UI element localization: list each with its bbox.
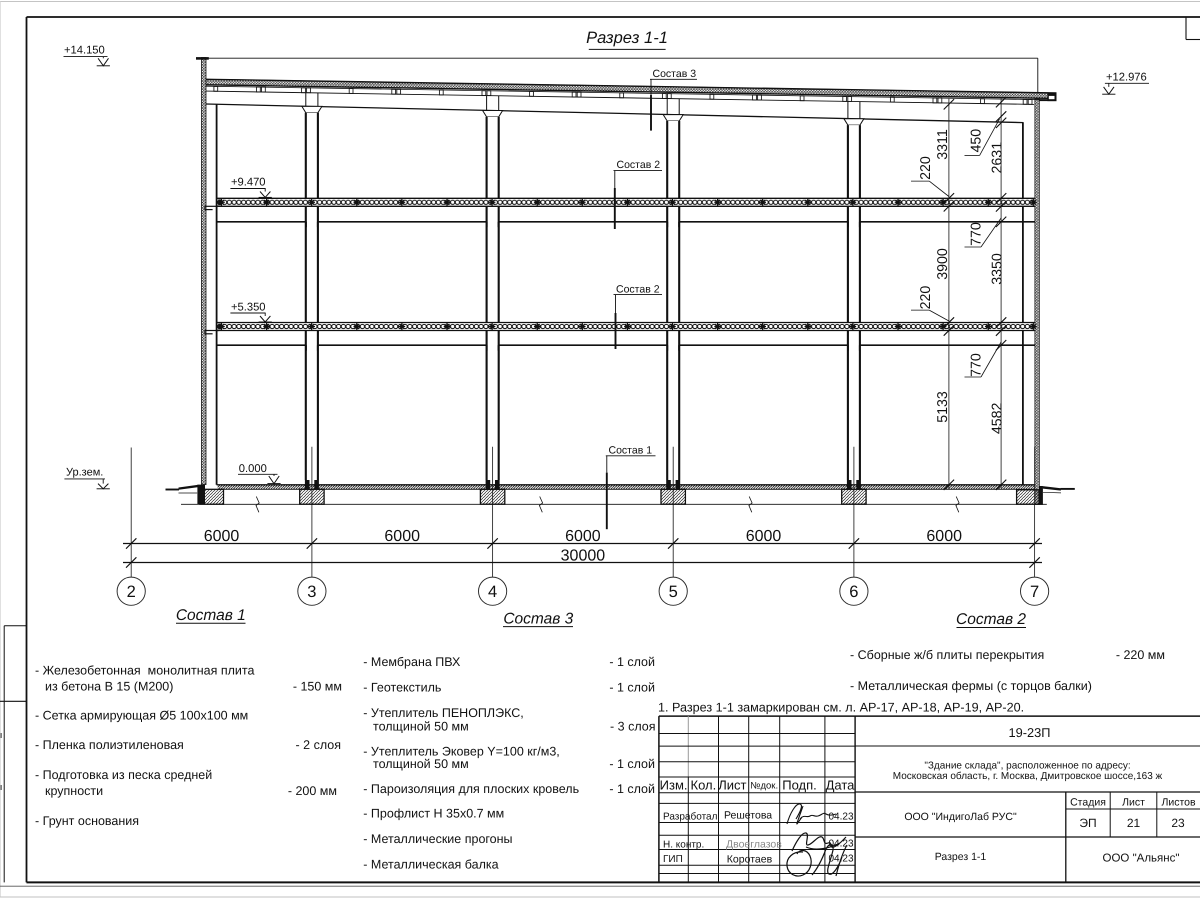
svg-text:толщиной 50 мм: толщиной 50 мм bbox=[373, 757, 469, 771]
svg-text:3350: 3350 bbox=[990, 253, 1006, 285]
svg-text:3: 3 bbox=[307, 583, 316, 601]
svg-text:770: 770 bbox=[969, 353, 985, 377]
svg-text:23: 23 bbox=[1171, 816, 1185, 830]
svg-text:4582: 4582 bbox=[990, 403, 1006, 435]
svg-text:Кол.: Кол. bbox=[691, 778, 717, 793]
svg-text:30000: 30000 bbox=[561, 548, 606, 565]
svg-text:- 220 мм: - 220 мм bbox=[1116, 648, 1165, 662]
svg-text:- 1 слой: - 1 слой bbox=[609, 681, 655, 695]
svg-text:- Геотекстиль: - Геотекстиль bbox=[363, 681, 441, 695]
svg-text:- Мембрана ПВХ: - Мембрана ПВХ bbox=[363, 655, 461, 669]
svg-text:6000: 6000 bbox=[746, 528, 782, 545]
svg-text:770: 770 bbox=[969, 222, 985, 246]
svg-text:- 3 слоя: - 3 слоя bbox=[610, 719, 655, 733]
svg-text:21: 21 bbox=[1127, 816, 1141, 830]
svg-text:- Сетка армирующая Ø5 100х100: - Сетка армирующая Ø5 100х100 мм bbox=[35, 709, 248, 723]
svg-text:ГИП: ГИП bbox=[663, 854, 683, 865]
svg-text:220: 220 bbox=[918, 286, 934, 310]
svg-text:Н. контр.: Н. контр. bbox=[663, 840, 704, 851]
svg-text:Разрез 1-1: Разрез 1-1 bbox=[586, 29, 668, 47]
svg-text:толщиной 50 мм: толщиной 50 мм bbox=[373, 719, 469, 733]
svg-text:- Грунт основания: - Грунт основания bbox=[35, 814, 139, 828]
svg-text:450: 450 bbox=[969, 129, 985, 153]
svg-text:ООО "Альянс": ООО "Альянс" bbox=[1103, 853, 1180, 865]
svg-text:- 150 мм: - 150 мм bbox=[293, 680, 342, 694]
svg-text:0.000: 0.000 bbox=[239, 463, 267, 475]
svg-text:из бетона В 15 (М200): из бетона В 15 (М200) bbox=[45, 680, 173, 694]
svg-text:Двоеглазов: Двоеглазов bbox=[726, 839, 782, 851]
svg-text:3900: 3900 bbox=[935, 248, 951, 280]
svg-text:Состав 3: Состав 3 bbox=[653, 68, 697, 80]
svg-text:крупности: крупности bbox=[45, 784, 103, 798]
svg-text:04.23: 04.23 bbox=[828, 812, 853, 823]
svg-text:220: 220 bbox=[918, 156, 934, 180]
svg-text:№док.: №док. bbox=[750, 781, 778, 792]
svg-text:- 200 мм: - 200 мм bbox=[288, 784, 337, 798]
svg-text:Состав 2: Состав 2 bbox=[956, 611, 1026, 628]
svg-text:Ур.зем.: Ур.зем. bbox=[66, 467, 103, 479]
svg-text:- Железобетонная монолитная п: - Железобетонная монолитная плита bbox=[35, 664, 254, 678]
svg-text:Дата: Дата bbox=[826, 778, 856, 793]
svg-text:Состав 1: Состав 1 bbox=[176, 607, 246, 624]
svg-text:Решетова: Решетова bbox=[724, 810, 772, 822]
svg-text:Лист: Лист bbox=[718, 778, 746, 793]
svg-text:Лист: Лист bbox=[1122, 797, 1145, 809]
svg-text:- 2 слоя: - 2 слоя bbox=[296, 738, 341, 752]
svg-text:Стадия: Стадия bbox=[1070, 797, 1106, 809]
svg-text:- Пароизоляция для плоских кро: - Пароизоляция для плоских кровель bbox=[363, 782, 579, 796]
svg-text:+12.976: +12.976 bbox=[1106, 72, 1147, 84]
svg-text:Изм.: Изм. bbox=[660, 778, 688, 793]
svg-text:5: 5 bbox=[669, 583, 678, 601]
svg-text:Состав 3: Состав 3 bbox=[503, 610, 573, 627]
svg-text:19-23П: 19-23П bbox=[1009, 725, 1051, 740]
svg-text:Состав 2: Состав 2 bbox=[616, 284, 660, 296]
svg-text:Коротаев: Коротаев bbox=[727, 854, 773, 866]
svg-text:6000: 6000 bbox=[204, 528, 240, 545]
svg-text:- Подготовка из песка средней: - Подготовка из песка средней bbox=[35, 768, 212, 782]
svg-text:- 1 слой: - 1 слой bbox=[609, 782, 655, 796]
svg-text:+5.350: +5.350 bbox=[231, 302, 266, 314]
svg-text:Московская область, г. Москва,: Московская область, г. Москва, Дмитровск… bbox=[893, 771, 1163, 782]
svg-text:ЭП: ЭП bbox=[1079, 816, 1096, 830]
svg-text:+14.150: +14.150 bbox=[64, 45, 105, 57]
svg-text:Листов: Листов bbox=[1161, 797, 1196, 809]
svg-text:4: 4 bbox=[488, 583, 497, 601]
svg-text:- 1 слой: - 1 слой bbox=[609, 757, 655, 771]
svg-text:Состав 1: Состав 1 bbox=[609, 445, 653, 457]
svg-text:6000: 6000 bbox=[926, 528, 962, 545]
svg-text:- Металлические прогоны: - Металлические прогоны bbox=[363, 832, 512, 846]
svg-text:- Металлическая фермы (с торцо: - Металлическая фермы (с торцов балки) bbox=[850, 679, 1092, 693]
svg-text:5133: 5133 bbox=[935, 391, 951, 423]
svg-text:1. Разрез 1-1 замаркирован см.: 1. Разрез 1-1 замаркирован см. л. АР-17,… bbox=[658, 701, 1024, 715]
svg-text:3311: 3311 bbox=[935, 129, 951, 160]
svg-text:6: 6 bbox=[849, 583, 858, 601]
svg-text:- Профлист Н 35х0.7 мм: - Профлист Н 35х0.7 мм bbox=[363, 807, 504, 821]
svg-text:- Металлическая балка: - Металлическая балка bbox=[363, 858, 498, 872]
svg-text:+9.470: +9.470 bbox=[231, 177, 266, 189]
svg-text:Разрез 1-1: Разрез 1-1 bbox=[935, 851, 987, 863]
svg-text:6000: 6000 bbox=[384, 528, 420, 545]
svg-text:Подп.: Подп. bbox=[782, 778, 817, 793]
svg-text:6000: 6000 bbox=[565, 528, 601, 545]
svg-text:2631: 2631 bbox=[990, 142, 1006, 174]
svg-text:- Утеплитель ПЕНОПЛЭКС,: - Утеплитель ПЕНОПЛЭКС, bbox=[363, 706, 523, 720]
svg-text:- 1 слой: - 1 слой bbox=[609, 655, 655, 669]
svg-text:Состав 2: Состав 2 bbox=[617, 159, 661, 171]
svg-text:Разработал: Разработал bbox=[663, 811, 718, 822]
svg-text:"Здание склада", расположенное: "Здание склада", расположенное по адресу… bbox=[924, 761, 1130, 772]
svg-text:2: 2 bbox=[127, 583, 136, 601]
svg-text:ООО "ИндигоЛаб РУС": ООО "ИндигоЛаб РУС" bbox=[904, 811, 1017, 823]
svg-text:7: 7 bbox=[1030, 583, 1039, 601]
svg-text:- Сборные ж/б плиты перекрытия: - Сборные ж/б плиты перекрытия bbox=[850, 648, 1044, 662]
svg-text:- Пленка полиэтиленовая: - Пленка полиэтиленовая bbox=[35, 738, 184, 752]
